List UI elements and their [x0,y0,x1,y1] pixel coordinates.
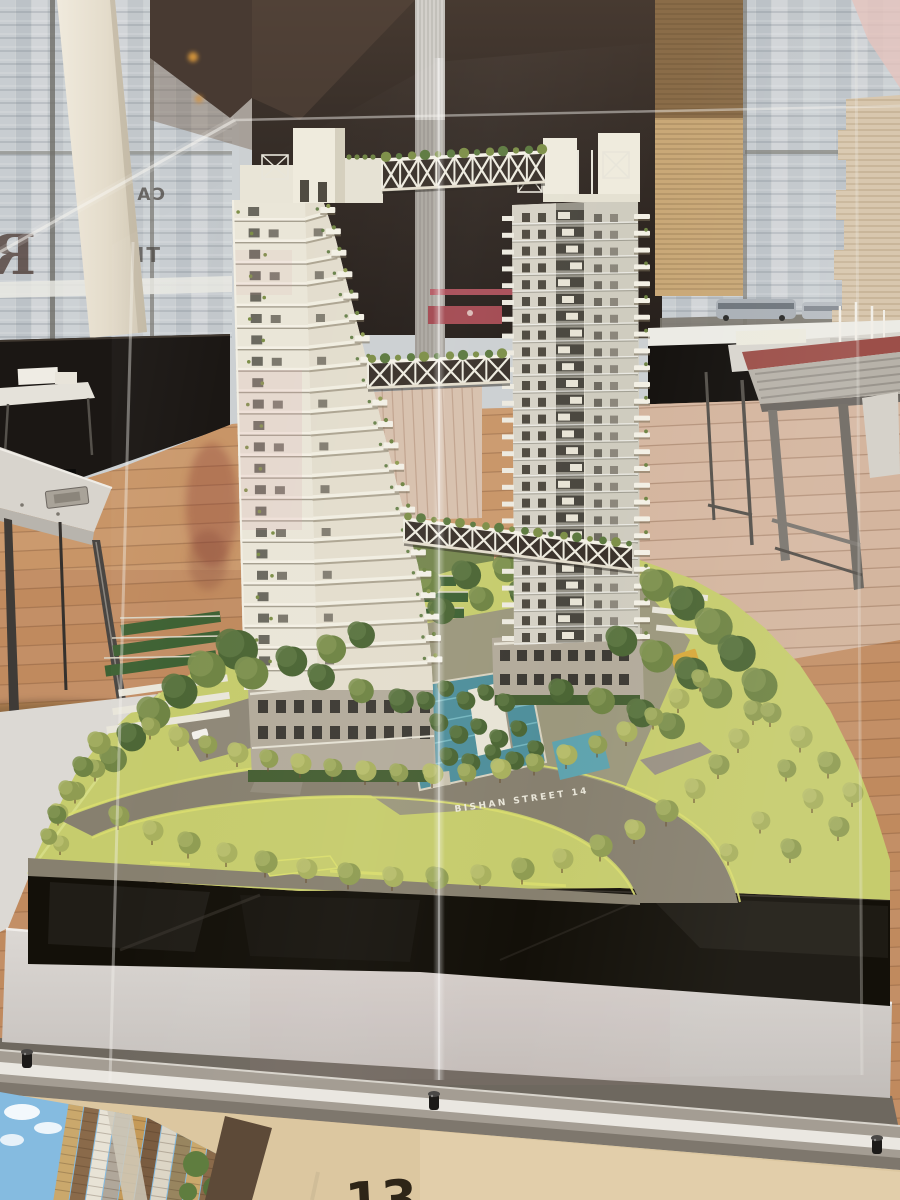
glass-sign-ca: CA [135,185,165,205]
amber-light-glint-2 [195,95,203,103]
table-screw-1 [20,503,24,507]
model-slab-2 [55,372,77,384]
model-slab-1 [18,367,59,385]
photo-cloud-2 [34,1122,62,1134]
photo-cloud-3 [0,1134,24,1146]
scene-svg: CA TE R [0,0,900,1200]
glass-sheen [110,25,862,1082]
photo-cloud-1 [4,1104,40,1120]
placard-number: 13 [344,1169,419,1200]
showroom-photo: CA TE R [0,0,900,1200]
photo-trees-1 [183,1151,209,1177]
table-screw-2 [56,512,60,516]
placard-group: 13 [344,1169,419,1200]
amber-light-glint-1 [188,52,198,62]
